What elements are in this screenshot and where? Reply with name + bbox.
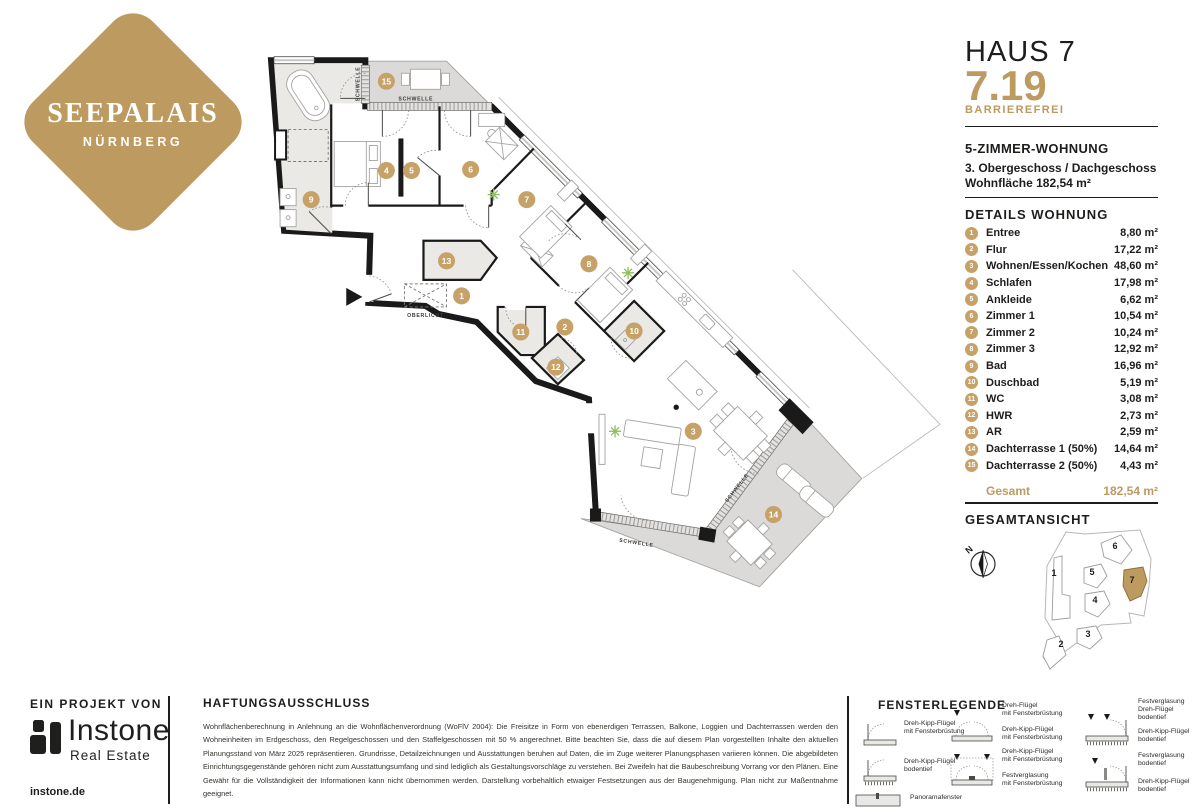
room-number-badge: 13 — [965, 426, 978, 439]
svg-text:2: 2 — [563, 322, 568, 332]
room-number-badge: 10 — [965, 376, 978, 389]
room-number-badge: 8 — [965, 343, 978, 356]
room-list: 1Entree8,80 m²2Flur17,22 m²3Wohnen/Essen… — [965, 225, 1158, 474]
total-label: Gesamt — [965, 484, 1103, 498]
room-number-badge: 7 — [965, 326, 978, 339]
barrier-free-badge: BARRIEREFREI — [965, 104, 1064, 116]
room-name: Flur — [986, 244, 1114, 256]
total-row: Gesamt 182,54 m² — [965, 484, 1158, 498]
room-area: 8,80 m² — [1120, 227, 1158, 239]
divider — [965, 197, 1158, 198]
desk — [479, 113, 505, 126]
room-row: 12HWR2,73 m² — [965, 408, 1158, 425]
room-row: 1Entree8,80 m² — [965, 225, 1158, 242]
sideboard — [599, 414, 605, 464]
svg-text:10: 10 — [629, 326, 639, 336]
total-value: 182,54 m² — [1103, 484, 1158, 498]
room-area: 14,64 m² — [1114, 443, 1158, 455]
niche — [275, 130, 286, 159]
room-number-badge: 15 — [965, 459, 978, 472]
room-row: 2Flur17,22 m² — [965, 242, 1158, 259]
instone-logo: Instone Real Estate — [30, 720, 180, 770]
room-name: HWR — [986, 410, 1120, 422]
svg-text:11: 11 — [516, 327, 525, 337]
compass-icon: N — [963, 544, 995, 578]
room-row: 13AR2,59 m² — [965, 424, 1158, 441]
floor-info: 3. Obergeschoss / Dachgeschoss — [965, 161, 1156, 175]
svg-text:3: 3 — [1085, 629, 1090, 639]
room-name: Wohnen/Essen/Kochen — [986, 260, 1114, 272]
room-name: Dachterrasse 1 (50%) — [986, 443, 1114, 455]
room-number-badge: 6 — [965, 310, 978, 323]
svg-text:15: 15 — [382, 76, 392, 86]
room-name: WC — [986, 393, 1120, 405]
svg-text:5: 5 — [1089, 567, 1094, 577]
room-number-badge: 2 — [965, 243, 978, 256]
building-5 — [1084, 564, 1107, 588]
room-name: Zimmer 1 — [986, 310, 1114, 322]
svg-text:6: 6 — [468, 165, 473, 175]
washbasin — [280, 189, 296, 206]
oberlicht-label: OBERLICHT — [407, 313, 444, 319]
terrace-table — [410, 69, 440, 89]
seepalais-logo: SEEPALAIS NÜRNBERG — [23, 98, 243, 149]
footer-divider — [168, 696, 170, 804]
room-area: 17,98 m² — [1114, 277, 1158, 289]
entrance-arrow — [346, 288, 362, 306]
brand-subtitle: Real Estate — [70, 748, 151, 763]
logo-subtitle: NÜRNBERG — [23, 135, 243, 149]
living-area: Wohnfläche 182,54 m² — [965, 176, 1091, 190]
svg-text:6: 6 — [1112, 541, 1117, 551]
svg-text:13: 13 — [442, 256, 452, 266]
apartment-type: 5-ZIMMER-WOHNUNG — [965, 141, 1109, 156]
room-number-badge: 4 — [965, 277, 978, 290]
svg-text:7: 7 — [1129, 575, 1134, 585]
svg-text:1: 1 — [459, 291, 464, 301]
washbasin — [280, 210, 296, 227]
room-area: 16,96 m² — [1114, 360, 1158, 372]
instone-logo-mark — [33, 720, 44, 732]
stool — [674, 405, 679, 410]
room-area: 10,24 m² — [1114, 327, 1158, 339]
room-row: 8Zimmer 312,92 m² — [965, 341, 1158, 358]
brand-name: Instone — [68, 714, 170, 748]
room-number-badge: 5 — [965, 293, 978, 306]
unit-number: 7.19 — [965, 62, 1047, 110]
divider — [965, 126, 1158, 127]
site-overview-map: N 1234567 — [948, 526, 1165, 676]
ar-room — [423, 241, 496, 280]
room-row: 10Duschbad5,19 m² — [965, 374, 1158, 391]
disclaimer-text: Wohnflächenberechnung in Anlehnung an di… — [203, 720, 838, 800]
room-name: Zimmer 3 — [986, 343, 1114, 355]
room-area: 12,92 m² — [1114, 343, 1158, 355]
room-row: 5Ankleide6,62 m² — [965, 291, 1158, 308]
window-icon-dreh-dreh-kipp — [948, 706, 996, 746]
window-icon-dreh-kipp-bruestung — [858, 716, 902, 750]
svg-text:4: 4 — [384, 166, 389, 176]
brand-url: instone.de — [30, 786, 85, 798]
details-heading: DETAILS WOHNUNG — [965, 207, 1108, 222]
building-1 — [1052, 556, 1070, 620]
room-name: Schlafen — [986, 277, 1114, 289]
room-number-badge: 12 — [965, 409, 978, 422]
window-icon-festverglasung-dreh-bodentief — [1084, 706, 1132, 746]
disclaimer-heading: HAFTUNGSAUSSCHLUSS — [203, 696, 370, 710]
window-icon-festverglasung-bodentief — [1084, 752, 1132, 792]
room-name: Bad — [986, 360, 1114, 372]
svg-text:5: 5 — [409, 166, 414, 176]
floorplan-sheet: { "colors":{"gold":"#BD9A5F","marker_gol… — [0, 0, 1200, 812]
room-number-badge: 1 — [965, 227, 978, 240]
footer-divider — [847, 696, 849, 804]
room-row: 11WC3,08 m² — [965, 391, 1158, 408]
room-area: 3,08 m² — [1120, 393, 1158, 405]
svg-text:N: N — [963, 544, 974, 556]
room-name: Duschbad — [986, 377, 1120, 389]
room-row: 3Wohnen/Essen/Kochen48,60 m² — [965, 258, 1158, 275]
svg-text:12: 12 — [551, 362, 561, 372]
window-icon-dreh-kipp-bodentief — [858, 752, 902, 786]
room-area: 2,73 m² — [1120, 410, 1158, 422]
room-area: 17,22 m² — [1114, 244, 1158, 256]
room-row: 6Zimmer 110,54 m² — [965, 308, 1158, 325]
room-number-badge: 3 — [965, 260, 978, 273]
window-icon-panoramafenster — [854, 790, 904, 808]
room-area: 6,62 m² — [1120, 294, 1158, 306]
room-area: 2,59 m² — [1120, 426, 1158, 438]
svg-text:1: 1 — [1051, 568, 1056, 578]
logo-title: SEEPALAIS — [23, 98, 243, 130]
schwelle-label: SCHWELLE — [355, 67, 361, 102]
divider — [965, 502, 1158, 504]
overview-heading: GESAMTANSICHT — [965, 512, 1090, 527]
room-area: 10,54 m² — [1114, 310, 1158, 322]
svg-text:14: 14 — [769, 510, 779, 520]
bed-double — [334, 141, 380, 186]
room-area: 5,19 m² — [1120, 377, 1158, 389]
window — [274, 57, 314, 64]
room-number-badge: 14 — [965, 443, 978, 456]
threshold-terrace2 — [367, 102, 491, 110]
room-area: 48,60 m² — [1114, 260, 1158, 272]
room-name: Ankleide — [986, 294, 1120, 306]
svg-text:7: 7 — [524, 195, 529, 205]
svg-text:4: 4 — [1092, 595, 1097, 605]
floor-plan: SCHWELLE SCHWELLE SCHWELLE SCHWELLE OBER… — [258, 53, 945, 605]
svg-text:8: 8 — [587, 259, 592, 269]
room-row: 15Dachterrasse 2 (50%)4,43 m² — [965, 457, 1158, 474]
room-name: Entree — [986, 227, 1120, 239]
svg-text:9: 9 — [309, 195, 314, 205]
window-icon-dreh-kipp-festverglasung — [948, 750, 996, 790]
room-area: 4,43 m² — [1120, 460, 1158, 472]
room-name: Zimmer 2 — [986, 327, 1114, 339]
room-name: Dachterrasse 2 (50%) — [986, 460, 1120, 472]
svg-text:3: 3 — [691, 426, 696, 436]
building-7-highlighted — [1123, 567, 1147, 601]
window-legend: FENSTERLEGENDE Dreh-Kipp-Flügel mit Fens… — [852, 690, 1200, 812]
svg-text:2: 2 — [1058, 639, 1063, 649]
room-number-badge: 9 — [965, 360, 978, 373]
project-label: EIN PROJEKT VON — [30, 697, 162, 711]
threshold-bath-terrace — [361, 65, 369, 103]
room-number-badge: 11 — [965, 393, 978, 406]
room-row: 4Schlafen17,98 m² — [965, 275, 1158, 292]
room-row: 9Bad16,96 m² — [965, 358, 1158, 375]
room-name: AR — [986, 426, 1120, 438]
room-row: 14Dachterrasse 1 (50%)14,64 m² — [965, 441, 1158, 458]
schwelle-label: SCHWELLE — [398, 96, 433, 102]
room-row: 7Zimmer 210,24 m² — [965, 325, 1158, 342]
